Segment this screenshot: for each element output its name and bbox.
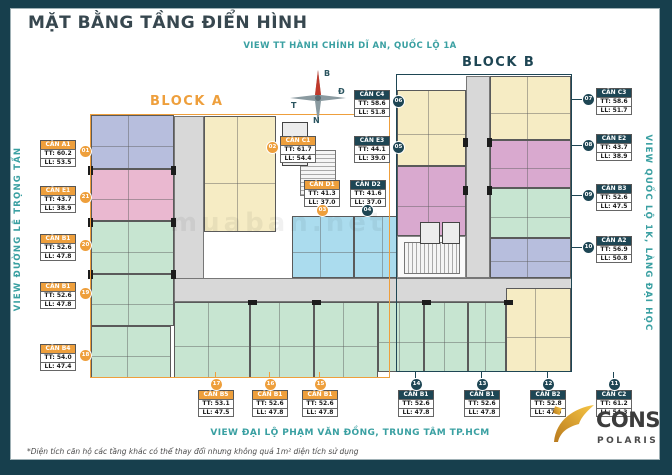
view-east-label: VIEW QUỐC LỘ 1K, LÀNG ĐẠI HỌC [643,103,653,363]
view-south-label: VIEW ĐẠI LỘ PHẠM VĂN ĐỒNG, TRUNG TÂM TP.… [140,428,560,438]
unit-label-b1-left1: CĂN B1TT: 52.6LL: 47.8 [40,234,76,261]
unit-area-b4 [91,326,171,378]
unit-badge: 12 [542,378,555,391]
compass-e: Đ [338,87,345,96]
unit-badge: 11 [608,378,621,391]
unit-tt: TT: 52.6 [596,193,632,203]
unit-area-b3 [490,188,571,238]
unit-label-b1-bottom2: CĂN B1TT: 52.6LL: 47.8 [302,390,338,417]
leader-line [571,247,582,248]
unit-tt: TT: 52.6 [302,399,338,409]
unit-label-b1-bottom1: CĂN B1TT: 52.6LL: 47.8 [252,390,288,417]
unit-badge: 06 [392,95,405,108]
unit-label-d2: CĂN D2TT: 41.6LL: 37.0 [350,180,386,207]
wall-tick [88,270,93,279]
unit-ll: LL: 54.4 [280,154,316,164]
unit-ll: LL: 47.5 [198,408,234,418]
logo-brand-text: CONS [596,408,660,432]
unit-ll: LL: 47.8 [464,408,500,418]
unit-tt: TT: 58.6 [354,99,390,109]
unit-area-c2 [506,288,571,372]
unit-tt: TT: 44.1 [354,145,390,155]
wall-tick [88,218,93,227]
watermark: muaban.net [170,208,386,238]
unit-ll: LL: 51.8 [354,108,390,118]
unit-area-b1-bottom3 [378,302,424,372]
unit-badge: 02 [266,141,279,154]
unit-label-e2: CĂN E2TT: 43.7LL: 38.9 [596,134,632,161]
unit-label-b1-bottom4: CĂN B1TT: 52.6LL: 47.8 [464,390,500,417]
compass-s: N [313,116,320,125]
view-north-label: VIEW TT HÀNH CHÍNH DĨ AN, QUỐC LỘ 1A [140,41,560,51]
unit-label-a1: CĂN A1TT: 60.2LL: 53.5 [40,140,76,167]
unit-area-e2 [490,140,571,188]
unit-area-c3 [490,76,571,140]
unit-label-d1: CĂN D1TT: 41.3LL: 37.0 [304,180,340,207]
bcons-swoosh-icon [550,402,596,446]
unit-tt: TT: 43.7 [40,195,76,205]
unit-ll: LL: 47.8 [40,252,76,262]
page-title: MẶT BẰNG TẦNG ĐIỂN HÌNH [28,13,308,33]
unit-tt: TT: 54.0 [40,353,76,363]
unit-label-c3: CĂN C3TT: 58.6LL: 51.7 [596,88,632,115]
unit-badge: 13 [476,378,489,391]
leader-line [571,195,582,196]
unit-label-b3: CĂN B3TT: 52.6LL: 47.5 [596,184,632,211]
stairs-block-b [404,242,460,274]
unit-label-b1-left2: CĂN B1TT: 52.6LL: 47.8 [40,282,76,309]
corridor-vertical-b [466,76,490,278]
elevator-1 [420,222,440,244]
unit-area-c4 [397,90,466,166]
wall-tick [171,218,176,227]
logo-sub-text: POLARIS [597,436,658,446]
unit-name: CĂN D1 [304,180,340,190]
unit-badge: 18 [79,349,92,362]
unit-tt: TT: 41.3 [304,189,340,199]
unit-ll: LL: 47.4 [40,362,76,372]
wall-tick [171,166,176,175]
unit-tt: TT: 52.6 [40,291,76,301]
unit-tt: TT: 52.6 [252,399,288,409]
unit-label-c4: CĂN C4TT: 58.6LL: 51.8 [354,90,390,117]
unit-tt: TT: 41.6 [350,189,386,199]
wall-tick [463,138,468,147]
wall-tick [248,300,257,305]
unit-tt: TT: 52.6 [398,399,434,409]
unit-badge: 10 [582,241,595,254]
wall-tick [487,186,492,195]
unit-area-b1-left2 [91,274,174,326]
unit-area-b1-left1 [91,221,174,274]
unit-area-b2 [468,302,506,372]
unit-ll: LL: 50.8 [596,254,632,264]
unit-badge: 09 [582,189,595,202]
leader-line [571,99,582,100]
wall-tick [312,300,321,305]
unit-ll: LL: 47.5 [596,202,632,212]
unit-area-b1-bottom2 [314,302,378,378]
unit-name: CĂN D2 [350,180,386,190]
unit-label-a2: CĂN A2TT: 56.9LL: 50.8 [596,236,632,263]
unit-badge: 16 [264,378,277,391]
unit-ll: LL: 47.8 [40,300,76,310]
unit-ll: LL: 38.9 [596,152,632,162]
unit-tt: TT: 61.7 [280,145,316,155]
unit-ll: LL: 39.0 [354,154,390,164]
unit-tt: TT: 52.6 [40,243,76,253]
unit-tt: TT: 56.9 [596,245,632,255]
unit-tt: TT: 58.6 [596,97,632,107]
unit-area-e1 [91,169,174,221]
unit-badge: 08 [582,139,595,152]
wall-tick [171,270,176,279]
wall-tick [487,138,492,147]
bcons-logo: CONS POLARIS [550,402,662,462]
unit-ll: LL: 47.8 [398,408,434,418]
unit-area-a2 [490,238,571,278]
unit-label-b5: CĂN B5TT: 53.1LL: 47.5 [198,390,234,417]
unit-area-b1-bottom4 [424,302,468,372]
wall-tick [504,300,513,305]
leader-line [571,145,582,146]
view-west-label: VIEW ĐƯỜNG LÊ TRỌNG TẤN [13,99,23,359]
unit-label-b4: CĂN B4TT: 54.0LL: 47.4 [40,344,76,371]
unit-label-b1-bottom3: CĂN B1TT: 52.6LL: 47.8 [398,390,434,417]
elevator-2 [442,222,460,244]
unit-badge: 05 [392,141,405,154]
unit-tt: TT: 43.7 [596,143,632,153]
compass-rose: B Đ T N [288,64,348,126]
unit-area-b5 [174,302,250,378]
unit-badge: 20 [79,239,92,252]
unit-label-c1: CĂN C1TT: 61.7LL: 54.4 [280,136,316,163]
unit-ll: LL: 38.9 [40,204,76,214]
unit-badge: 07 [582,93,595,106]
unit-badge: 21 [79,191,92,204]
wall-tick [422,300,431,305]
unit-tt: TT: 53.1 [198,399,234,409]
unit-badge: 17 [210,378,223,391]
unit-label-e3: CĂN E3TT: 44.1LL: 39.0 [354,136,390,163]
unit-ll: LL: 51.7 [596,106,632,116]
unit-badge: 14 [410,378,423,391]
unit-tt: TT: 52.6 [464,399,500,409]
unit-ll: LL: 53.5 [40,158,76,168]
compass-n: B [324,69,330,78]
block-b-label: BLOCK B [462,55,535,70]
unit-badge: 01 [79,145,92,158]
unit-badge: 15 [314,378,327,391]
unit-badge: 04 [361,204,374,217]
unit-badge: 03 [316,204,329,217]
wall-tick [88,166,93,175]
wall-tick [463,186,468,195]
unit-badge: 19 [79,287,92,300]
unit-label-e1: CĂN E1TT: 43.7LL: 38.9 [40,186,76,213]
block-a-label: BLOCK A [150,94,223,109]
compass-w: T [291,101,297,110]
unit-ll: LL: 47.8 [302,408,338,418]
unit-ll: LL: 47.8 [252,408,288,418]
unit-area-b1-bottom1 [250,302,314,378]
unit-tt: TT: 60.2 [40,149,76,159]
footnote: *Diện tích căn hộ các tầng khác có thể t… [27,447,358,456]
unit-area-a1 [91,115,174,169]
